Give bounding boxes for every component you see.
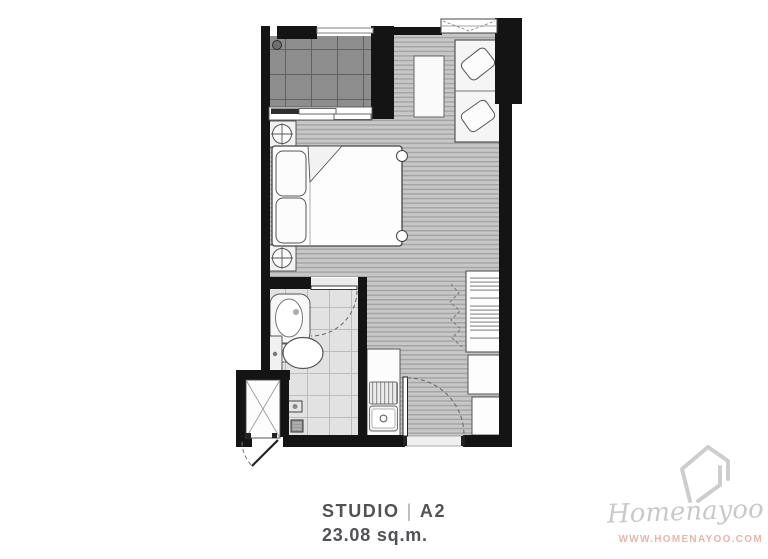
balcony xyxy=(268,36,372,112)
kitchen-sink xyxy=(370,406,398,431)
watermark-brand: Homenayoo xyxy=(607,494,765,529)
shaft-door xyxy=(252,440,278,466)
bed-pillow-icon xyxy=(276,198,306,243)
nightstand-top xyxy=(268,121,296,147)
sliding-glass-door xyxy=(269,107,372,120)
floor-plan-page: STUDIO|A2 23.08 sq.m. Homenayoo WWW.HOME… xyxy=(0,0,768,559)
kitchen-counter xyxy=(367,349,400,436)
refrigerator-cabinet xyxy=(468,355,504,394)
caption-separator: | xyxy=(400,501,420,521)
unit-type-label: STUDIO xyxy=(322,501,400,521)
balcony-railing xyxy=(317,28,373,33)
unit-caption: STUDIO|A2 23.08 sq.m. xyxy=(322,499,446,547)
service-shaft xyxy=(242,380,280,466)
unit-code-label: A2 xyxy=(420,501,446,521)
floor-drain-icon xyxy=(291,420,303,432)
coffee-table xyxy=(414,56,444,117)
drying-rack xyxy=(370,382,398,404)
unit-area-label: 23.08 sq.m. xyxy=(322,523,446,547)
watermark: Homenayoo WWW.HOMENAYOO.COM xyxy=(608,439,768,559)
window xyxy=(441,19,497,33)
bed-pillow-icon xyxy=(276,151,306,196)
double-bed xyxy=(272,146,408,246)
watermark-url: WWW.HOMENAYOO.COM xyxy=(618,534,763,545)
nightstand-bottom xyxy=(268,245,296,271)
balcony-floor-drain-icon xyxy=(273,41,282,50)
